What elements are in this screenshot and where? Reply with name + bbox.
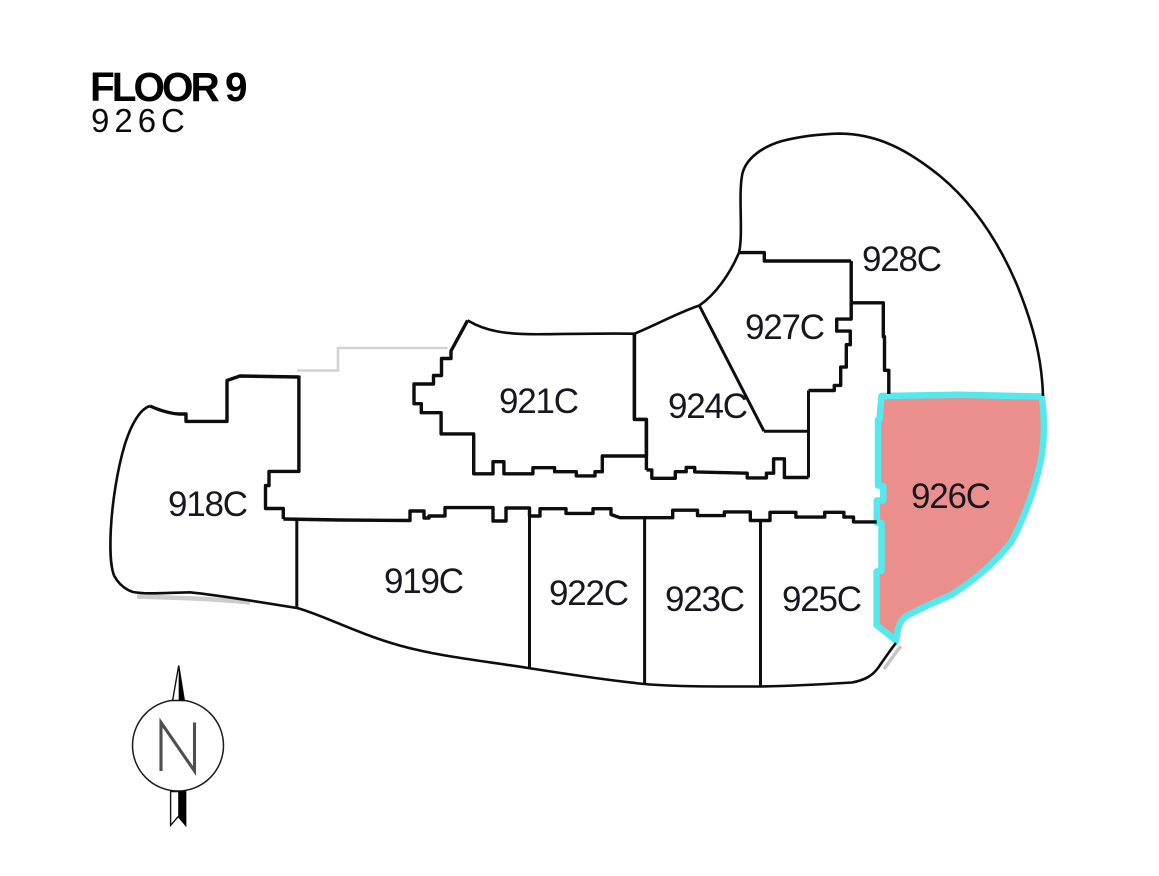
svg-text:926C: 926C <box>91 102 190 139</box>
svg-text:922C: 922C <box>549 574 628 613</box>
svg-text:923C: 923C <box>665 580 744 619</box>
svg-text:921C: 921C <box>499 382 578 421</box>
svg-text:928C: 928C <box>862 240 941 279</box>
svg-text:927C: 927C <box>745 308 824 347</box>
svg-text:925C: 925C <box>782 580 861 619</box>
svg-text:918C: 918C <box>168 485 247 524</box>
svg-text:919C: 919C <box>384 562 463 601</box>
svg-text:926C: 926C <box>911 477 990 516</box>
svg-text:924C: 924C <box>668 387 747 426</box>
